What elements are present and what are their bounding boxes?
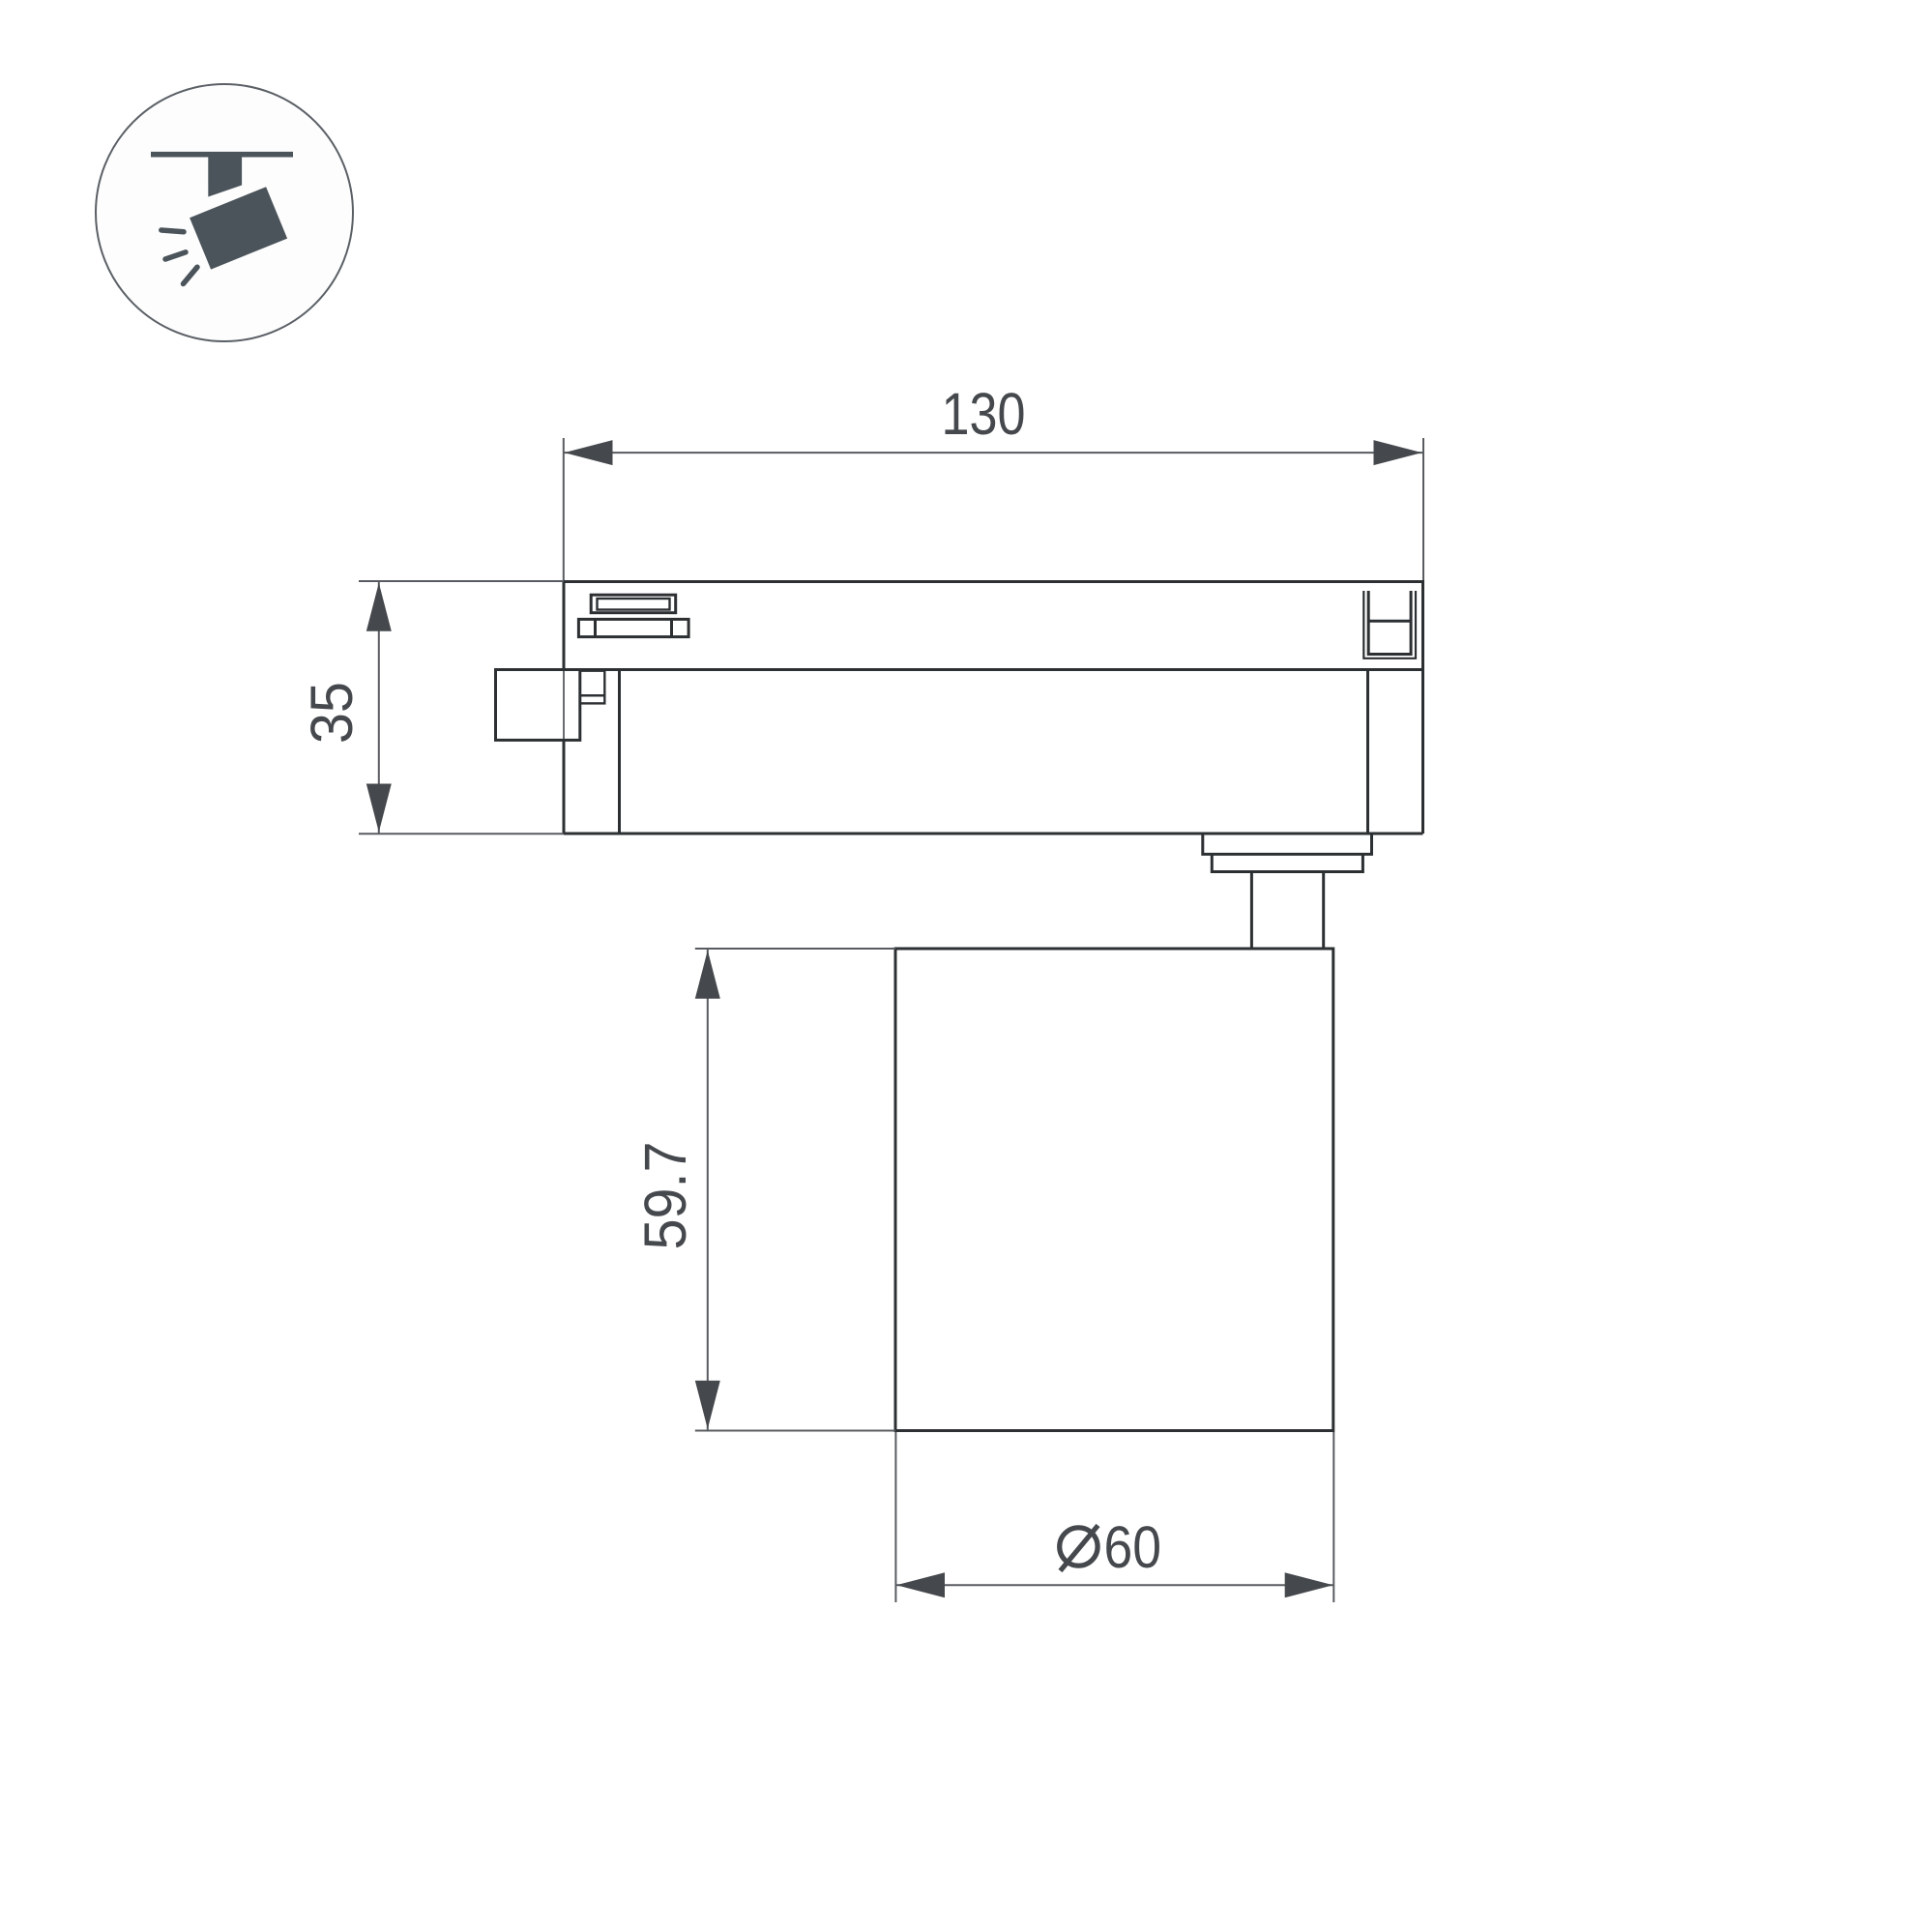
svg-text:130: 130: [942, 381, 1026, 448]
svg-text:60: 60: [1104, 1514, 1162, 1581]
svg-text:35: 35: [299, 682, 366, 744]
svg-text:59.7: 59.7: [632, 1142, 699, 1250]
